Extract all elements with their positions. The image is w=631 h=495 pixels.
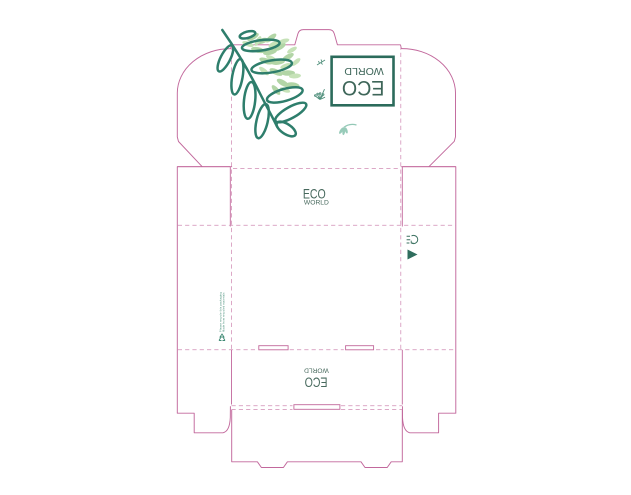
svg-text:ECO: ECO: [305, 374, 328, 389]
svg-text:ECO: ECO: [342, 76, 385, 100]
svg-text:Made from recycled materials: Made from recycled materials: [222, 292, 226, 332]
svg-text:WORLD: WORLD: [304, 366, 329, 373]
svg-text:WORLD: WORLD: [304, 199, 329, 206]
svg-text:WORLD: WORLD: [344, 65, 383, 76]
